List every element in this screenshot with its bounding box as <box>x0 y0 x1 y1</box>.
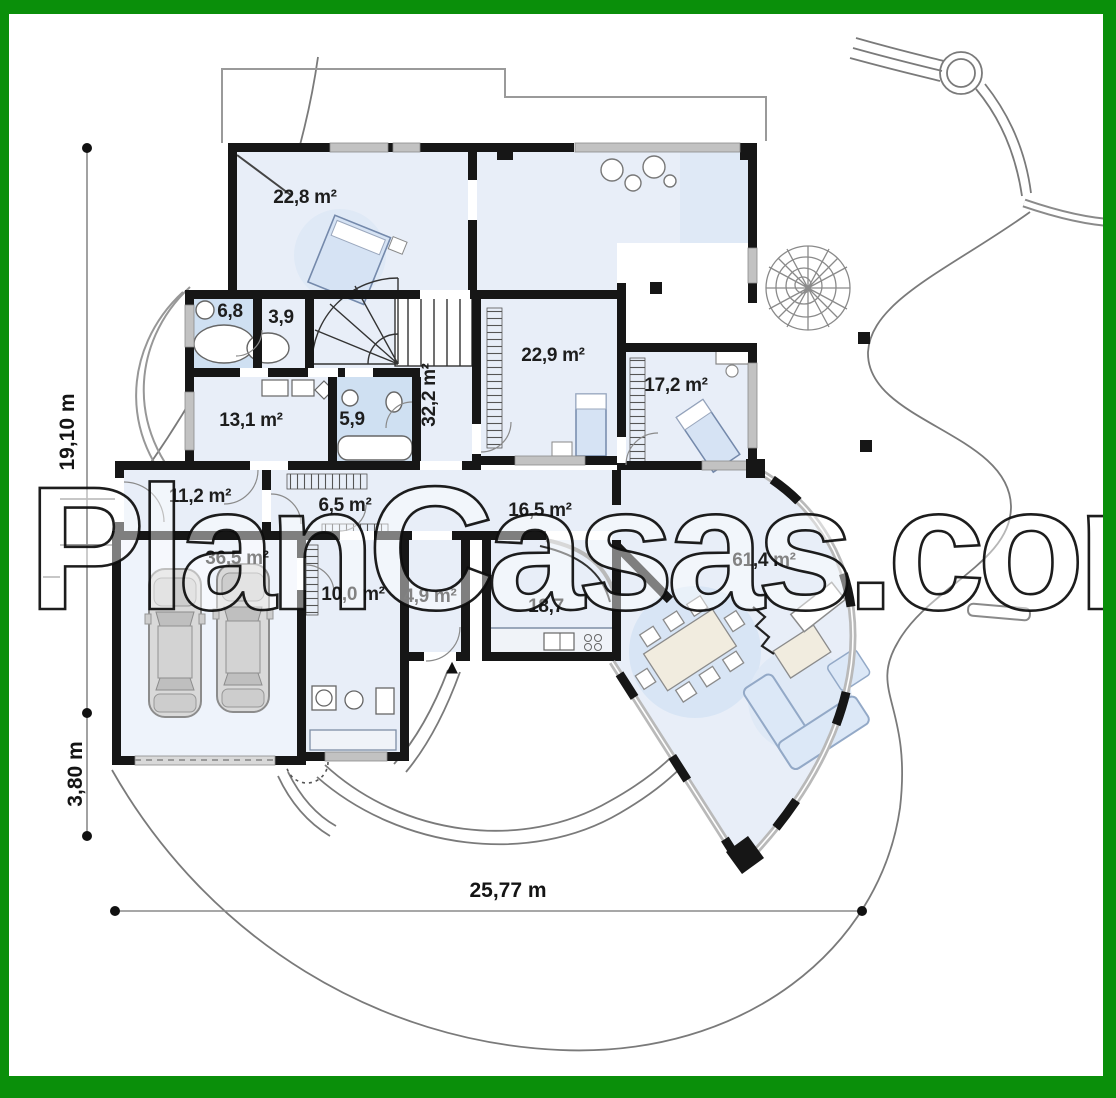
room-label-pantry-4-9: 4,9 m² <box>403 586 456 608</box>
room-label-dining-16-5: 16,5 m² <box>508 500 571 522</box>
floor-plan-page: 22,8 m² 6,8 3,9 32,2 m² 22,9 m² 17,2 m² … <box>0 0 1116 1098</box>
room-label-bedroom-22-9: 22,9 m² <box>521 345 584 367</box>
room-label-utility-10-0: 10,0 m² <box>321 584 384 606</box>
room-label-living-61-4: 61,4 m² <box>732 550 795 572</box>
room-label-vestibule-11-2: 11,2 m² <box>169 486 231 508</box>
dimension-width-total: 25,77 m <box>469 879 546 903</box>
floor-plan-drawing <box>0 0 1116 1098</box>
room-label-kitchen-18-7: 18,7 <box>528 596 564 618</box>
desk <box>716 350 752 364</box>
frame-border-bottom <box>0 1076 1116 1098</box>
frame-border-left <box>0 0 9 1098</box>
bench <box>968 603 1031 620</box>
car-1 <box>145 569 205 717</box>
walkway-path <box>850 38 1031 196</box>
room-label-bath-6-8: 6,8 <box>217 301 243 323</box>
room-label-room-13-1: 13,1 m² <box>219 410 282 432</box>
frame-border-right <box>1103 0 1116 1098</box>
room-label-wardrobe-3-9: 3,9 <box>268 307 294 329</box>
dimension-height-total: 19,10 m <box>56 393 80 470</box>
room-label-bath-5-9: 5,9 <box>339 409 365 431</box>
spiral-ornament <box>766 246 850 330</box>
room-label-garage-36-5: 36,5 m² <box>205 548 268 570</box>
room-label-hall-32-2: 32,2 m² <box>419 363 441 426</box>
entrance-arrow-icon: ▲ <box>442 657 462 680</box>
room-label-bedroom-17-2: 17,2 m² <box>644 375 707 397</box>
room-label-bedroom-22-8: 22,8 m² <box>273 187 336 209</box>
car-2 <box>213 564 273 712</box>
cabinet-icons <box>262 380 333 399</box>
dimension-height-offset: 3,80 m <box>64 741 88 806</box>
room-label-hall-6-5: 6,5 m² <box>318 495 371 517</box>
frame-border-top <box>0 0 1116 14</box>
